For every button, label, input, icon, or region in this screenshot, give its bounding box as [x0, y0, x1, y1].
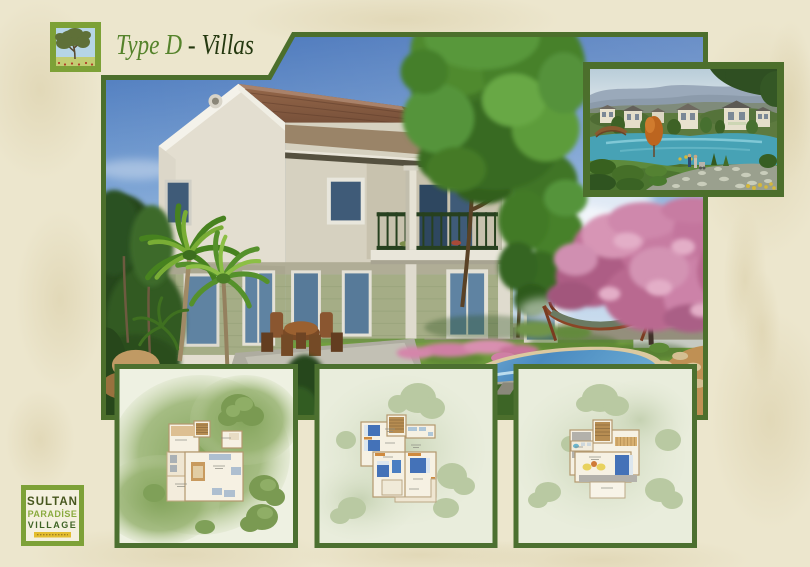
svg-text:Type D - Villas: Type D - Villas [116, 30, 254, 61]
svg-text:PARADİSE: PARADİSE [28, 509, 78, 519]
svg-text:VILLAGE: VILLAGE [28, 520, 78, 530]
svg-text:SULTAN: SULTAN [27, 496, 78, 508]
